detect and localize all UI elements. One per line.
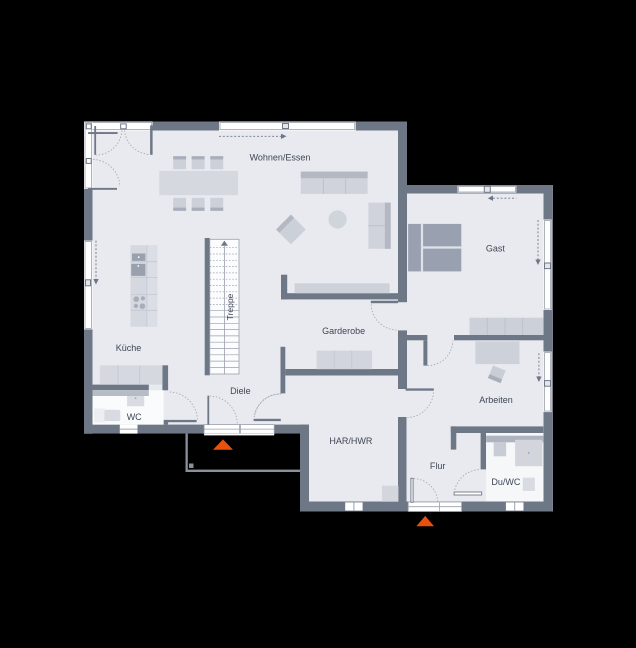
svg-text:Flur: Flur — [430, 461, 446, 471]
svg-text:Küche: Küche — [116, 343, 142, 353]
svg-text:Wohnen/Essen: Wohnen/Essen — [250, 152, 311, 162]
svg-text:HAR/HWR: HAR/HWR — [329, 436, 372, 446]
svg-text:Treppe: Treppe — [225, 293, 235, 320]
svg-text:WC: WC — [127, 412, 142, 422]
svg-text:Garderobe: Garderobe — [322, 326, 365, 336]
svg-text:Diele: Diele — [230, 386, 251, 396]
svg-text:Arbeiten: Arbeiten — [479, 395, 513, 405]
svg-text:Gast: Gast — [486, 243, 506, 253]
svg-text:Du/WC: Du/WC — [491, 477, 521, 487]
